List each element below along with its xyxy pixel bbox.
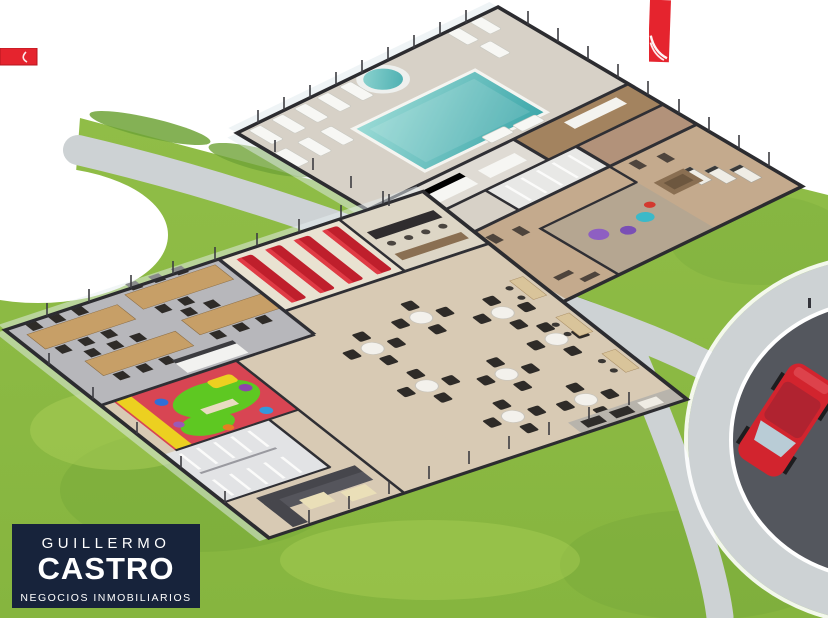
render-image: GUILLERMO CASTRO NEGOCIOS INMOBILIARIOS xyxy=(0,0,828,618)
brand-watermark: GUILLERMO CASTRO NEGOCIOS INMOBILIARIOS xyxy=(12,524,200,608)
brand-tagline: NEGOCIOS INMOBILIARIOS xyxy=(12,592,200,604)
tiny-person xyxy=(808,298,811,308)
brand-last-name: CASTRO xyxy=(12,553,200,585)
brand-first-name: GUILLERMO xyxy=(12,535,200,552)
red-logo-partial xyxy=(0,48,38,66)
red-ribbon-logo xyxy=(649,0,677,68)
